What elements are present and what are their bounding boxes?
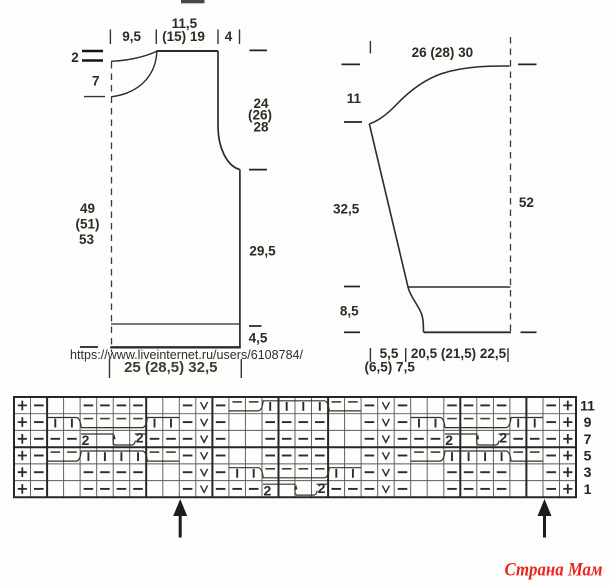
svg-text:2: 2 [82, 432, 90, 448]
svg-text:29,5: 29,5 [249, 244, 276, 259]
svg-text:1: 1 [584, 481, 592, 497]
svg-text:9: 9 [584, 414, 592, 430]
svg-text:8,5: 8,5 [340, 304, 359, 319]
svg-text:32,5: 32,5 [333, 202, 360, 217]
svg-text:28: 28 [253, 120, 269, 135]
svg-text:2: 2 [499, 430, 507, 446]
svg-text:2: 2 [264, 482, 272, 498]
svg-text:(15) 19: (15) 19 [162, 29, 205, 44]
svg-text:2: 2 [71, 50, 79, 65]
svg-text:7: 7 [584, 431, 592, 447]
svg-text:26 (28) 30: 26 (28) 30 [412, 45, 474, 60]
svg-text:5: 5 [584, 448, 592, 464]
svg-text:9,5: 9,5 [122, 29, 141, 44]
svg-text:49: 49 [80, 201, 95, 216]
svg-text:3: 3 [584, 464, 592, 480]
svg-text:11: 11 [347, 91, 362, 106]
svg-text:2: 2 [445, 432, 453, 448]
svg-text:53: 53 [79, 232, 95, 247]
svg-text:2: 2 [318, 480, 326, 496]
svg-text:4,5: 4,5 [249, 331, 268, 346]
svg-text:4: 4 [225, 29, 233, 44]
svg-text:11: 11 [580, 397, 595, 413]
svg-text:https://www.liveinternet.ru/us: https://www.liveinternet.ru/users/610878… [70, 348, 304, 362]
svg-text:7: 7 [92, 74, 100, 89]
svg-text:(51): (51) [75, 217, 99, 232]
svg-text:Страна Мам: Страна Мам [505, 560, 603, 581]
svg-text:20,5 (21,5) 22,5: 20,5 (21,5) 22,5 [411, 346, 507, 361]
svg-text:52: 52 [519, 195, 534, 210]
svg-text:(6,5) 7,5: (6,5) 7,5 [365, 360, 416, 375]
svg-text:2: 2 [136, 430, 144, 446]
